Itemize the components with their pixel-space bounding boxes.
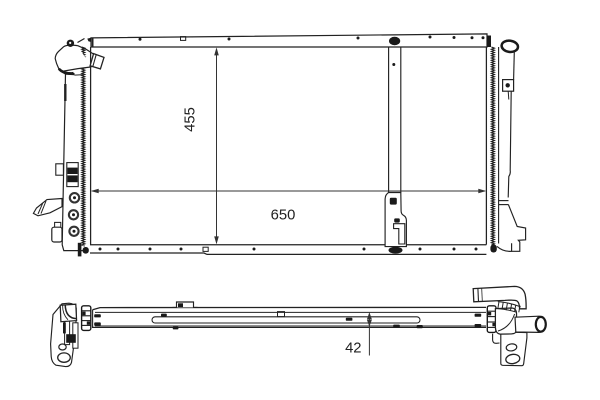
svg-text:42: 42 [345,341,361,357]
svg-text:650: 650 [271,208,296,224]
svg-text:455: 455 [183,107,199,132]
